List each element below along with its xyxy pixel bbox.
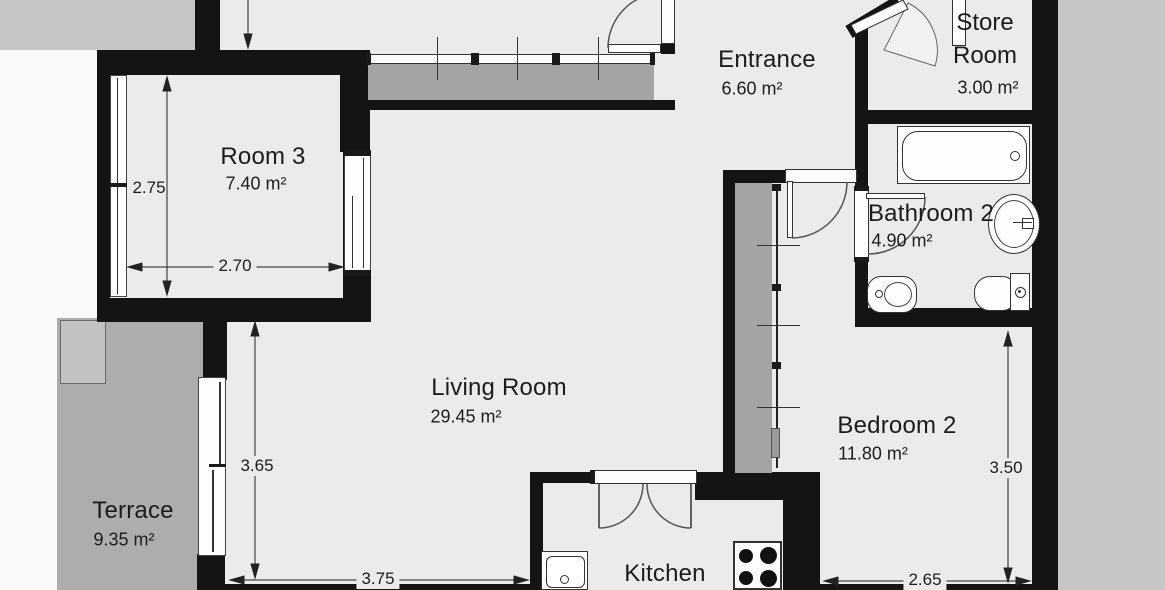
room-area-terrace: 9.35 m² — [93, 530, 154, 551]
floor-lower-band — [203, 300, 1058, 590]
wardrobe-track-panel — [771, 428, 780, 458]
wardrobe-tick — [517, 37, 518, 80]
bathroom-door-frame — [854, 190, 869, 258]
room-area-bathroom2: 4.90 m² — [871, 231, 932, 252]
room-label-kitchen: Kitchen — [624, 560, 705, 588]
stove-burner — [760, 570, 777, 587]
outside-band-right — [1058, 0, 1165, 590]
dimension-3-75: 3.75 — [356, 569, 399, 589]
bathtub-drain — [1010, 151, 1020, 161]
wall — [723, 473, 820, 485]
wall — [855, 110, 1032, 124]
bidet-dot — [875, 290, 883, 298]
wardrobe-tick — [757, 245, 800, 246]
wall — [723, 170, 735, 473]
wall — [203, 300, 227, 380]
dimension-2-65: 2.65 — [903, 570, 946, 590]
kitchen-door-frame — [593, 470, 697, 484]
wall — [855, 25, 868, 310]
room-label-living: Living Room — [431, 374, 567, 402]
wardrobe-tick — [598, 37, 599, 80]
room-label-terrace: Terrace — [92, 497, 173, 525]
room-area-bedroom2: 11.80 m² — [838, 444, 908, 465]
wall — [97, 50, 367, 75]
toilet-flush-dot — [1018, 290, 1021, 293]
entrance-door-leaf — [608, 44, 661, 53]
wardrobe-divider — [552, 53, 560, 65]
wall — [97, 298, 371, 322]
bathroom-sink-tap-line — [1013, 222, 1032, 223]
room-label-room3: Room 3 — [220, 143, 305, 171]
wall — [340, 50, 370, 152]
room-area-store: 3.00 m² — [957, 78, 1018, 99]
window-glass-line — [352, 196, 353, 268]
wall — [97, 50, 110, 322]
room-label-entrance: Entrance — [718, 46, 816, 74]
window-room3-inner — [344, 150, 371, 276]
wall — [367, 100, 675, 110]
window-cap — [344, 150, 371, 156]
bathroom-sink-tap — [1022, 218, 1034, 229]
bathtub-basin — [902, 131, 1027, 181]
stove-burner — [739, 549, 753, 563]
window-divider — [110, 183, 127, 187]
outside-block-top-left — [0, 0, 195, 50]
window-divider — [209, 464, 226, 467]
wardrobe-tick — [757, 325, 800, 326]
wall — [195, 0, 220, 50]
terrace-planter — [60, 320, 106, 384]
wardrobe-track — [776, 190, 778, 468]
wardrobe-tick — [757, 407, 800, 408]
dimension-3-65: 3.65 — [235, 456, 278, 476]
dimension-2-70: 2.70 — [213, 256, 256, 276]
room-label-bathroom2: Bathroom 2 — [868, 200, 994, 228]
bedroom-door-frame — [785, 169, 857, 183]
bathroom-door-cap — [854, 186, 869, 191]
bedroom-door-leaf — [787, 181, 793, 238]
wardrobe-divider — [471, 53, 479, 65]
window-glass-line — [363, 158, 364, 268]
room-area-entrance: 6.60 m² — [721, 79, 782, 100]
entrance-wardrobe — [368, 64, 654, 100]
room-area-living: 29.45 m² — [430, 407, 501, 428]
wall — [1032, 0, 1058, 590]
wardrobe-rail — [370, 54, 652, 64]
floor-plan: Room 3 7.40 m² Living Room 29.45 m² Terr… — [0, 0, 1165, 590]
window-glass-line — [219, 382, 221, 465]
window-cap — [344, 270, 371, 276]
wardrobe-track-split — [772, 284, 781, 291]
bidet-bowl — [884, 282, 912, 307]
room-area-room3: 7.40 m² — [225, 174, 286, 195]
wardrobe-tick — [437, 37, 438, 80]
floor-room-above — [220, 0, 560, 50]
stove-burner — [739, 571, 753, 585]
bathroom-door-leaf — [866, 193, 925, 199]
wardrobe-track-split — [772, 362, 781, 369]
room-label-store: Store Room — [935, 6, 1035, 72]
wardrobe-rail-cap — [650, 53, 655, 65]
wardrobe-track-cap — [772, 184, 781, 191]
bathroom-door-cap — [854, 257, 869, 262]
kitchen-door-cap — [590, 470, 595, 484]
kitchen-sink-drain — [560, 575, 569, 584]
stove-burner — [760, 547, 777, 564]
wall — [197, 554, 225, 590]
wall — [530, 472, 595, 483]
entrance-door-jamb — [661, 0, 675, 44]
window-glass-line — [212, 470, 214, 552]
room-label-bedroom2: Bedroom 2 — [837, 412, 956, 440]
wardrobe-rail-cap — [366, 53, 371, 65]
dimension-2-75: 2.75 — [132, 178, 165, 198]
dimension-3-50: 3.50 — [984, 458, 1027, 478]
bedroom-wardrobe — [735, 183, 772, 473]
wall — [783, 472, 820, 590]
